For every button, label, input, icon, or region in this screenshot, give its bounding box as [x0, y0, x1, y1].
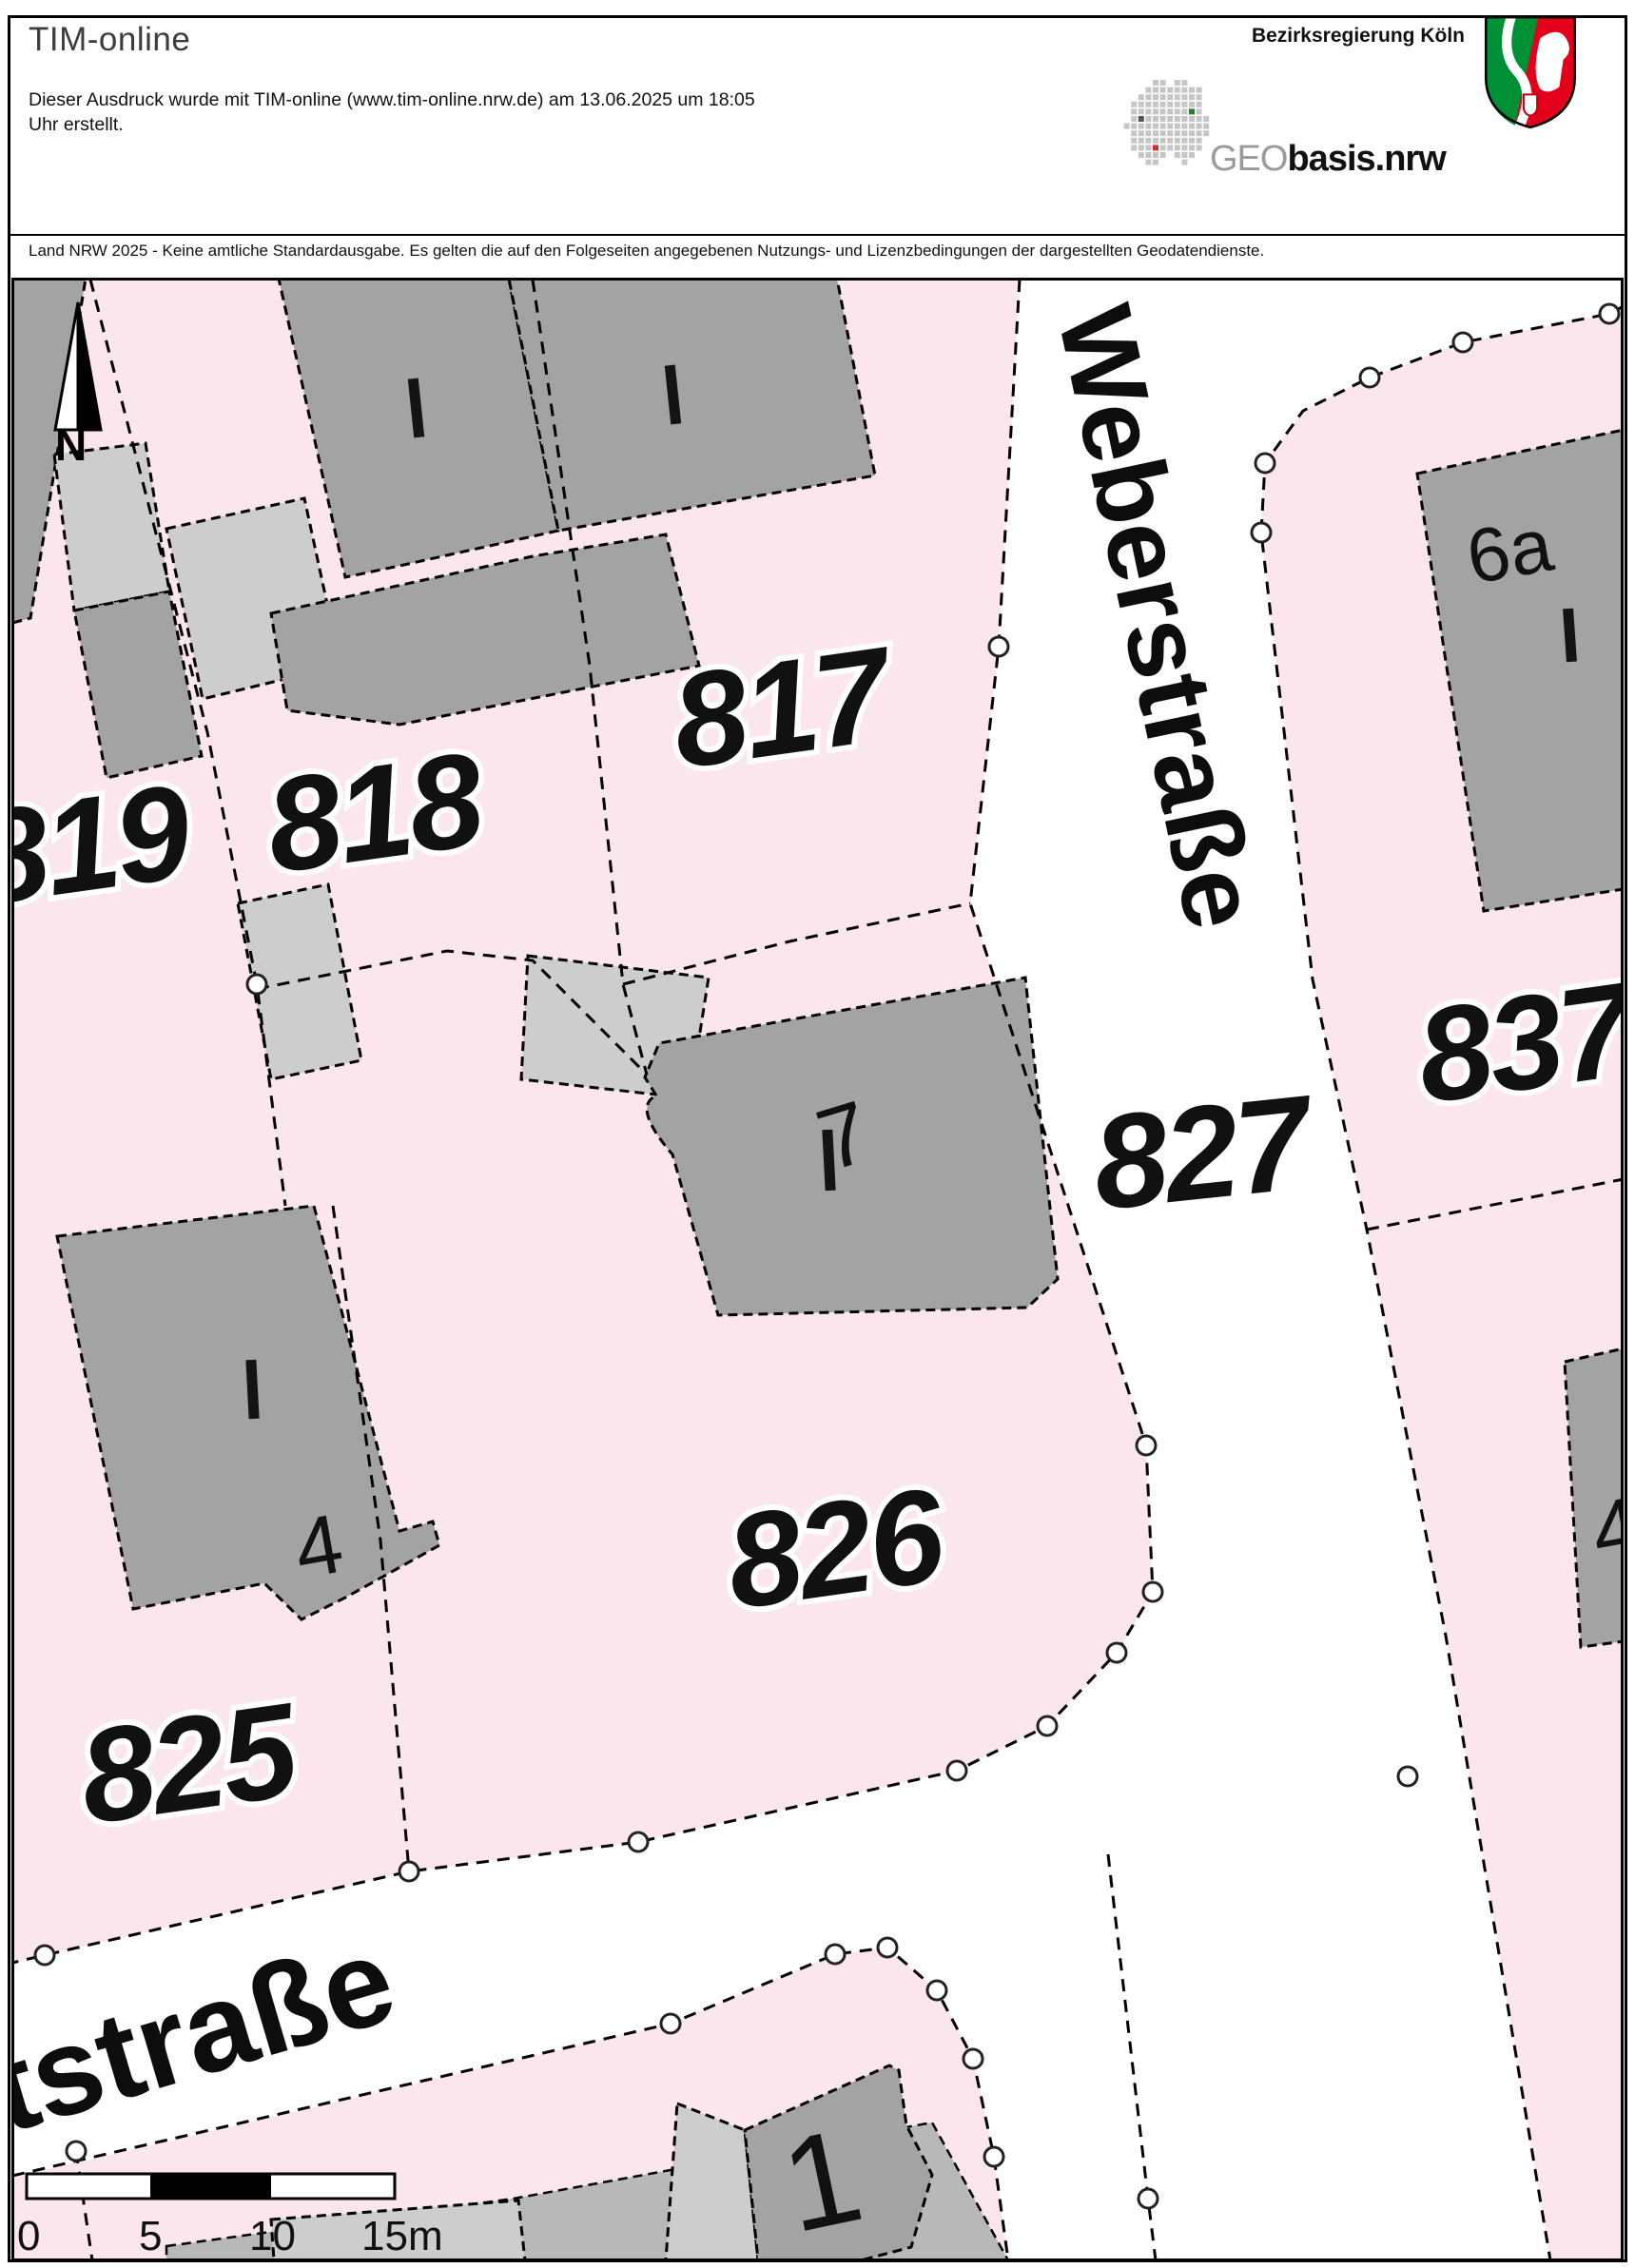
- parcel-label-825: 825: [70, 1674, 307, 1851]
- scale-label-15m: 15m: [361, 2213, 443, 2259]
- scale-label-5: 5: [139, 2213, 162, 2259]
- print-info: Dieser Ausdruck wurde mit TIM-online (ww…: [29, 87, 770, 138]
- print-page: TIM-online Dieser Ausdruck wurde mit TIM…: [0, 0, 1635, 2268]
- north-label: N: [55, 420, 87, 470]
- license-disclaimer: Land NRW 2025 - Keine amtliche Standarda…: [29, 242, 1607, 261]
- scale-label-10: 10: [249, 2213, 296, 2259]
- parcel-label-818: 818: [257, 724, 492, 901]
- page-title: TIM-online: [29, 21, 190, 59]
- geobasis-logo-basis: basis.nrw: [1287, 139, 1445, 179]
- agency-name: Bezirksregierung Köln: [1170, 25, 1465, 48]
- scale-label-0: 0: [17, 2213, 40, 2259]
- parcel-label-819: 819: [11, 756, 200, 934]
- parcel-label-837: 837: [1408, 953, 1624, 1132]
- parcel-label-827: 827: [1086, 1066, 1323, 1238]
- geobasis-logo-geo: GEO: [1210, 139, 1287, 179]
- parcel-label-826: 826: [717, 1459, 953, 1637]
- house-number-6a: 6a: [1460, 502, 1559, 600]
- print-info-line1: Dieser Ausdruck wurde mit TIM-online (ww…: [29, 89, 755, 110]
- header-divider: [8, 234, 1627, 236]
- parcel-label-817: 817: [663, 618, 904, 797]
- cadastral-map: 819 818 817 827 837 826 825 Weberstraße …: [11, 278, 1624, 2261]
- print-info-line2: Uhr erstellt.: [29, 114, 124, 135]
- geobasis-logo-text: GEObasis.nrw: [1210, 139, 1446, 180]
